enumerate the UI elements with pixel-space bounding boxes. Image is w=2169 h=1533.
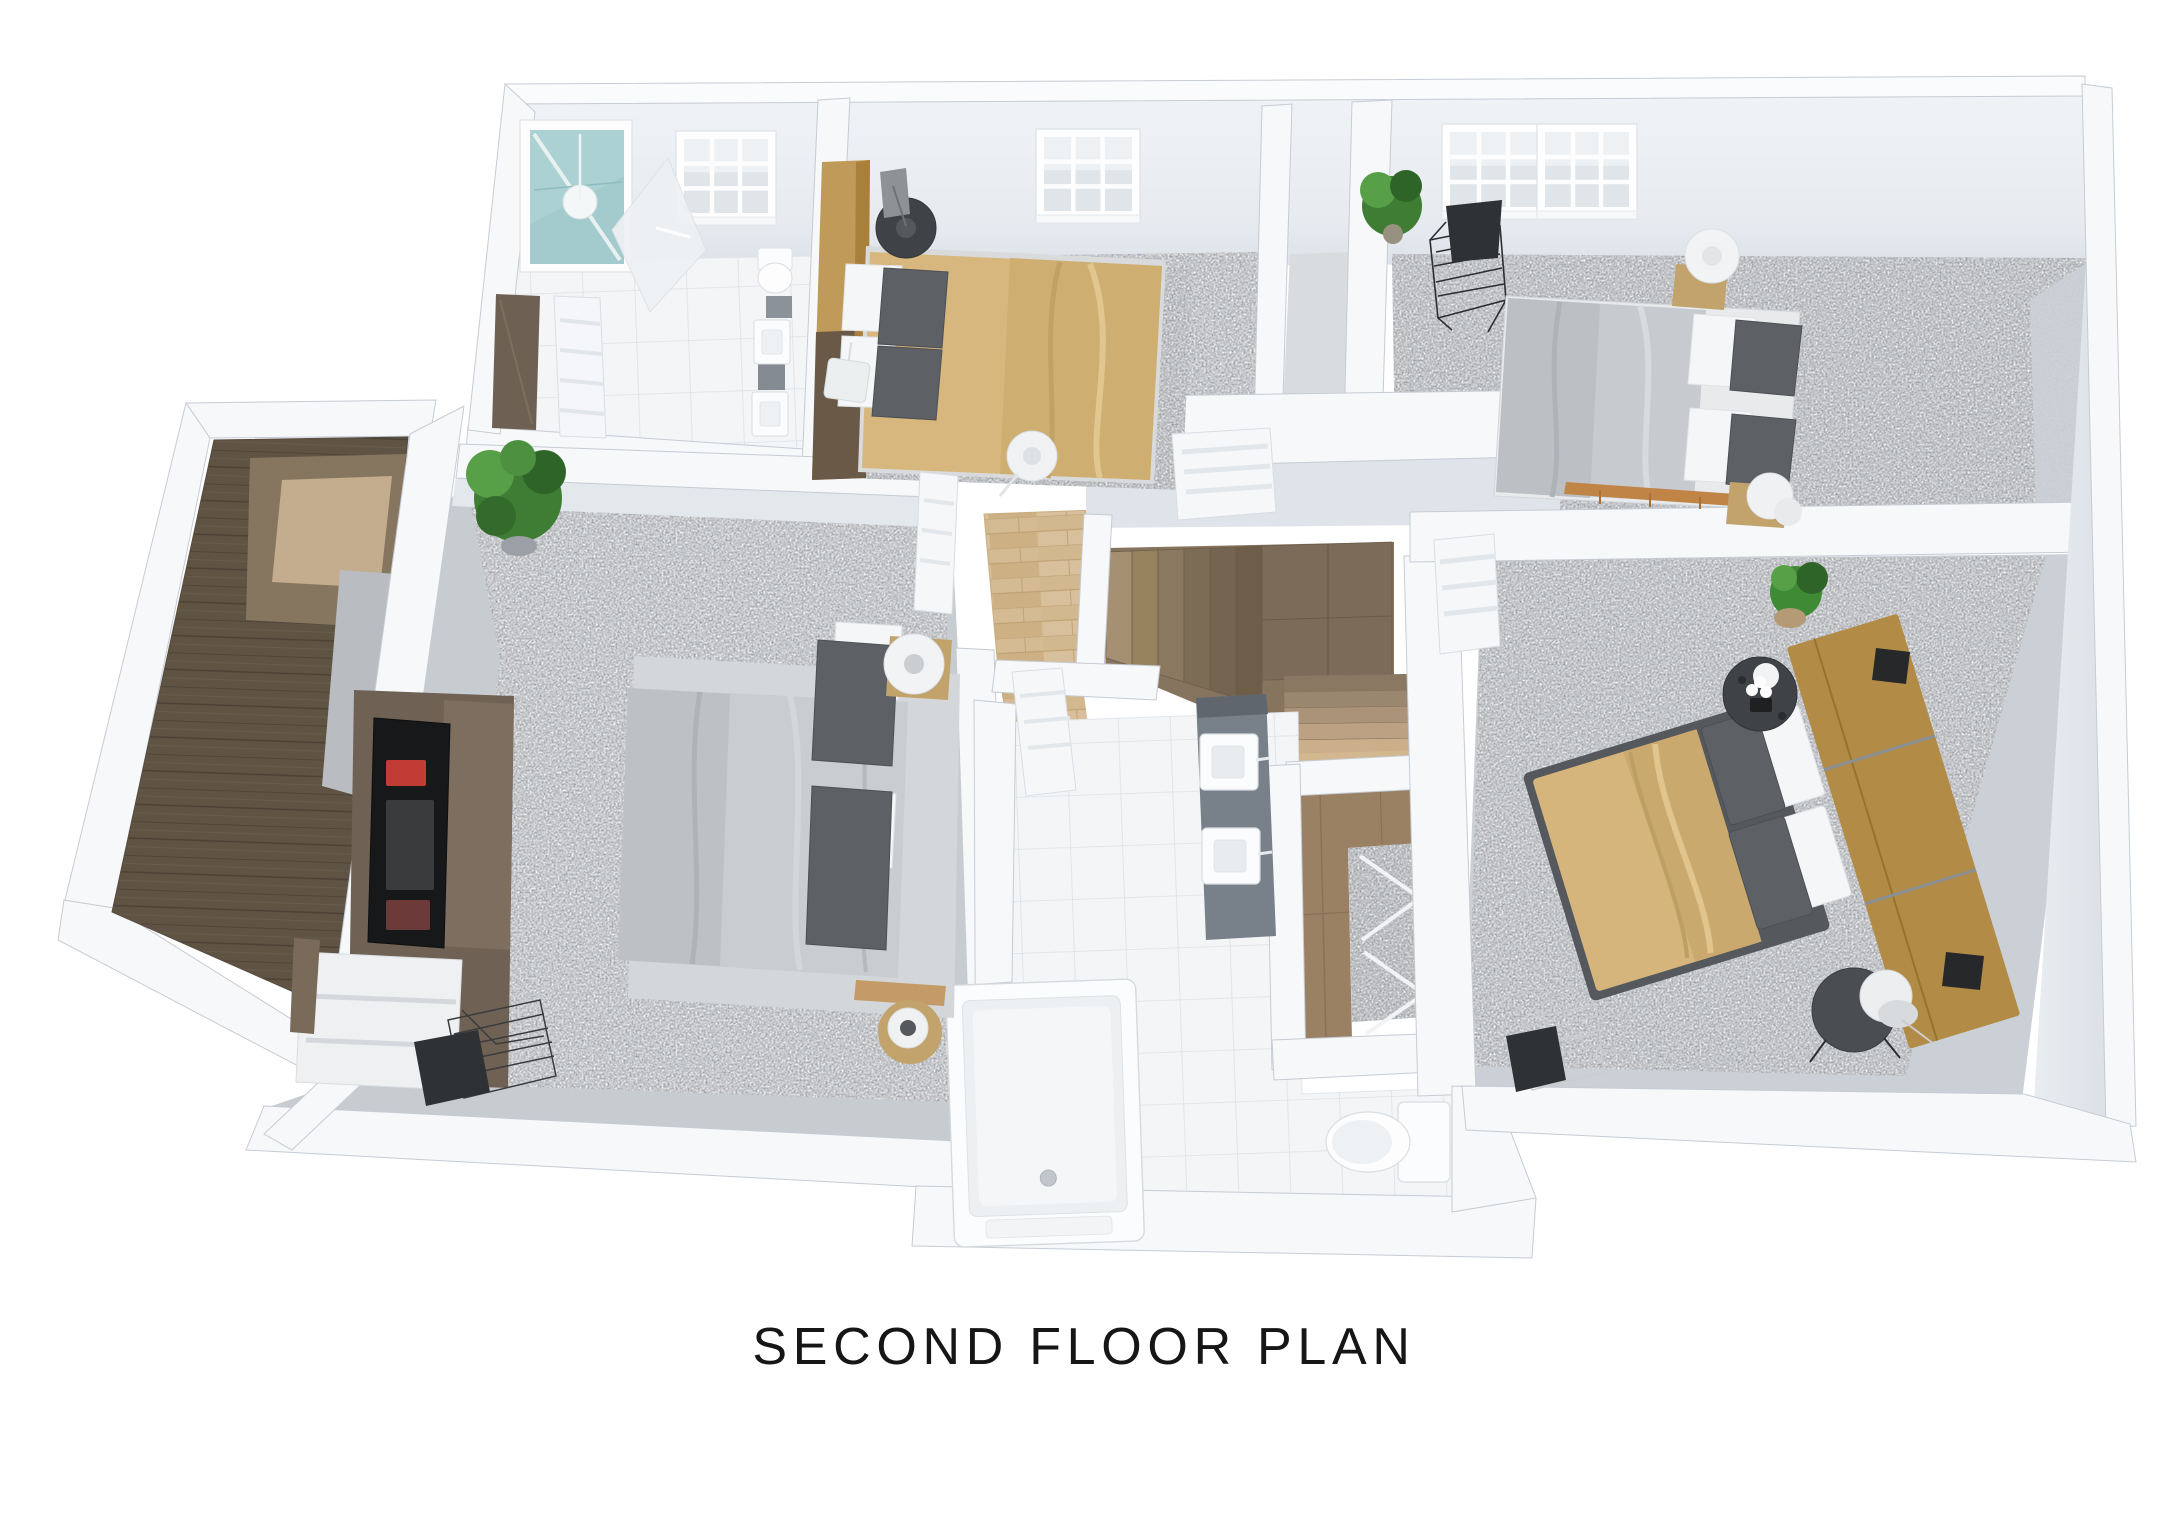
- svg-text:SECOND FLOOR PLAN: SECOND FLOOR PLAN: [752, 1318, 1415, 1376]
